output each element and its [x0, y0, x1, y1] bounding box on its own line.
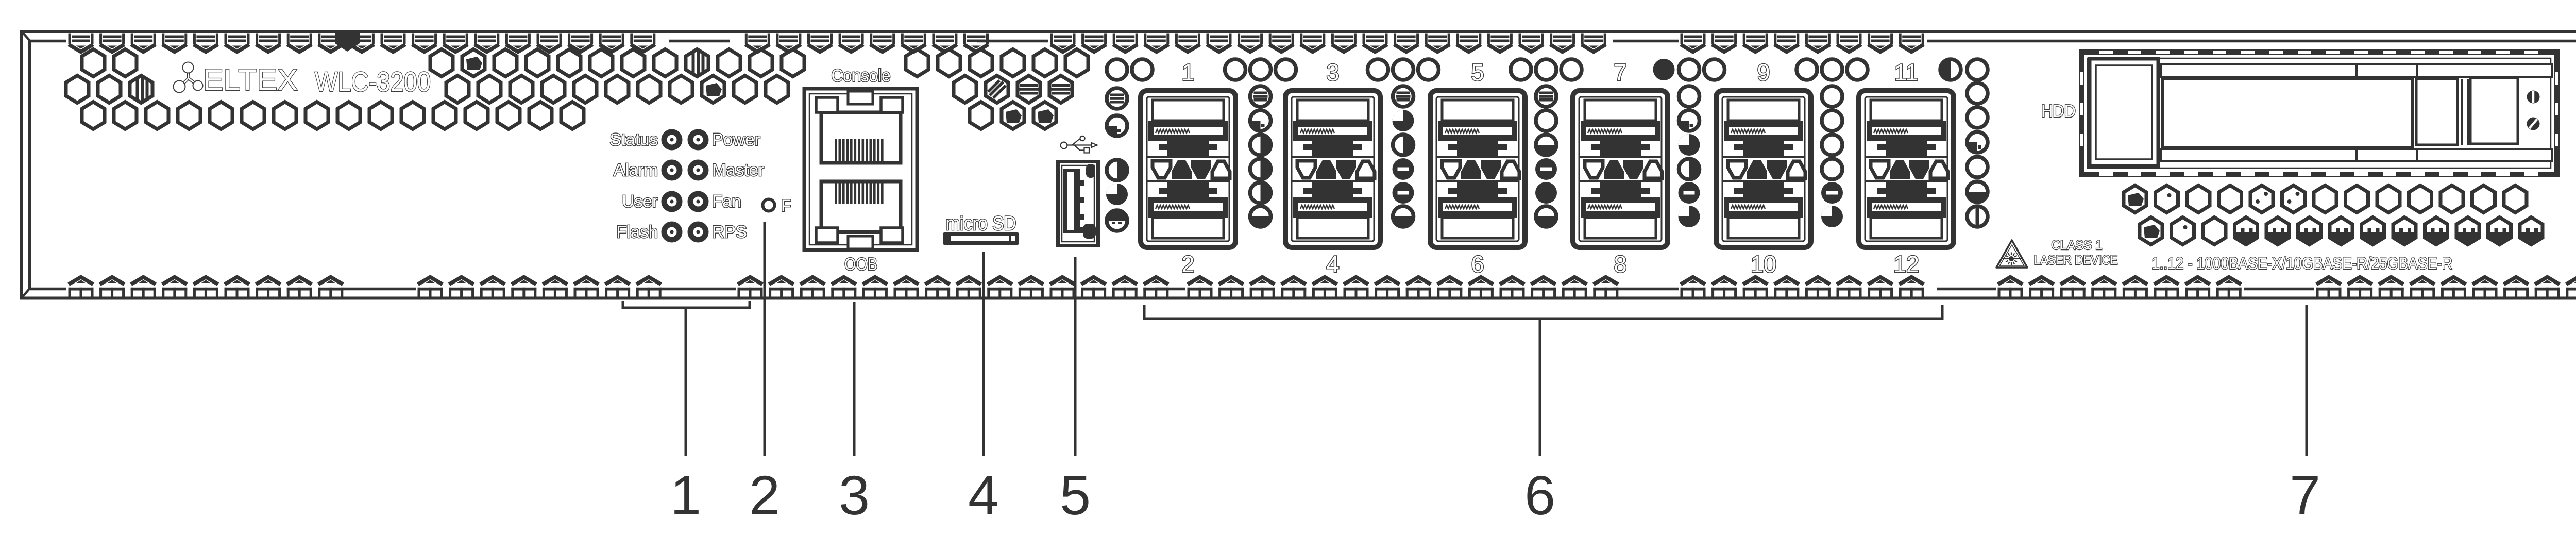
svg-text:7: 7 — [2290, 464, 2320, 526]
svg-text:5: 5 — [1471, 59, 1484, 86]
svg-text:2: 2 — [749, 464, 780, 526]
svg-text:8: 8 — [1614, 251, 1626, 277]
svg-text:1: 1 — [670, 464, 701, 526]
svg-text:6: 6 — [1524, 464, 1555, 526]
svg-text:Console: Console — [832, 66, 891, 86]
svg-text:User: User — [622, 192, 658, 211]
svg-text:WLC-3200: WLC-3200 — [315, 66, 431, 97]
svg-text:micro SD: micro SD — [946, 213, 1016, 235]
svg-text:Fan: Fan — [712, 192, 741, 211]
svg-text:Power: Power — [712, 130, 760, 149]
svg-text:12: 12 — [1893, 251, 1919, 277]
svg-text:4: 4 — [1326, 251, 1339, 277]
svg-text:4: 4 — [968, 464, 999, 526]
svg-text:3: 3 — [1326, 59, 1339, 86]
svg-text:1: 1 — [1181, 59, 1194, 86]
svg-text:7: 7 — [1614, 59, 1626, 86]
svg-text:9: 9 — [1757, 59, 1770, 86]
svg-text:2: 2 — [1181, 251, 1194, 277]
svg-text:10: 10 — [1751, 251, 1776, 277]
svg-text:6: 6 — [1471, 251, 1484, 277]
svg-text:Master: Master — [712, 160, 764, 179]
svg-text:OOB: OOB — [844, 255, 877, 274]
svg-text:5: 5 — [1060, 464, 1091, 526]
svg-text:HDD: HDD — [2041, 102, 2076, 121]
svg-text:CLASS 1: CLASS 1 — [2052, 238, 2103, 253]
svg-text:11: 11 — [1894, 59, 1919, 86]
svg-text:Status: Status — [609, 130, 658, 149]
svg-text:F: F — [781, 196, 791, 215]
svg-text:1..12 - 1000BASE-X/10GBASE-R/2: 1..12 - 1000BASE-X/10GBASE-R/25GBASE-R — [2151, 254, 2452, 273]
svg-text:Alarm: Alarm — [614, 160, 658, 179]
svg-text:RPS: RPS — [712, 222, 747, 241]
svg-text:Flash: Flash — [616, 222, 658, 241]
svg-text:3: 3 — [839, 464, 870, 526]
svg-text:ELTEX: ELTEX — [203, 63, 298, 97]
svg-text:LASER DEVICE: LASER DEVICE — [2034, 253, 2118, 268]
